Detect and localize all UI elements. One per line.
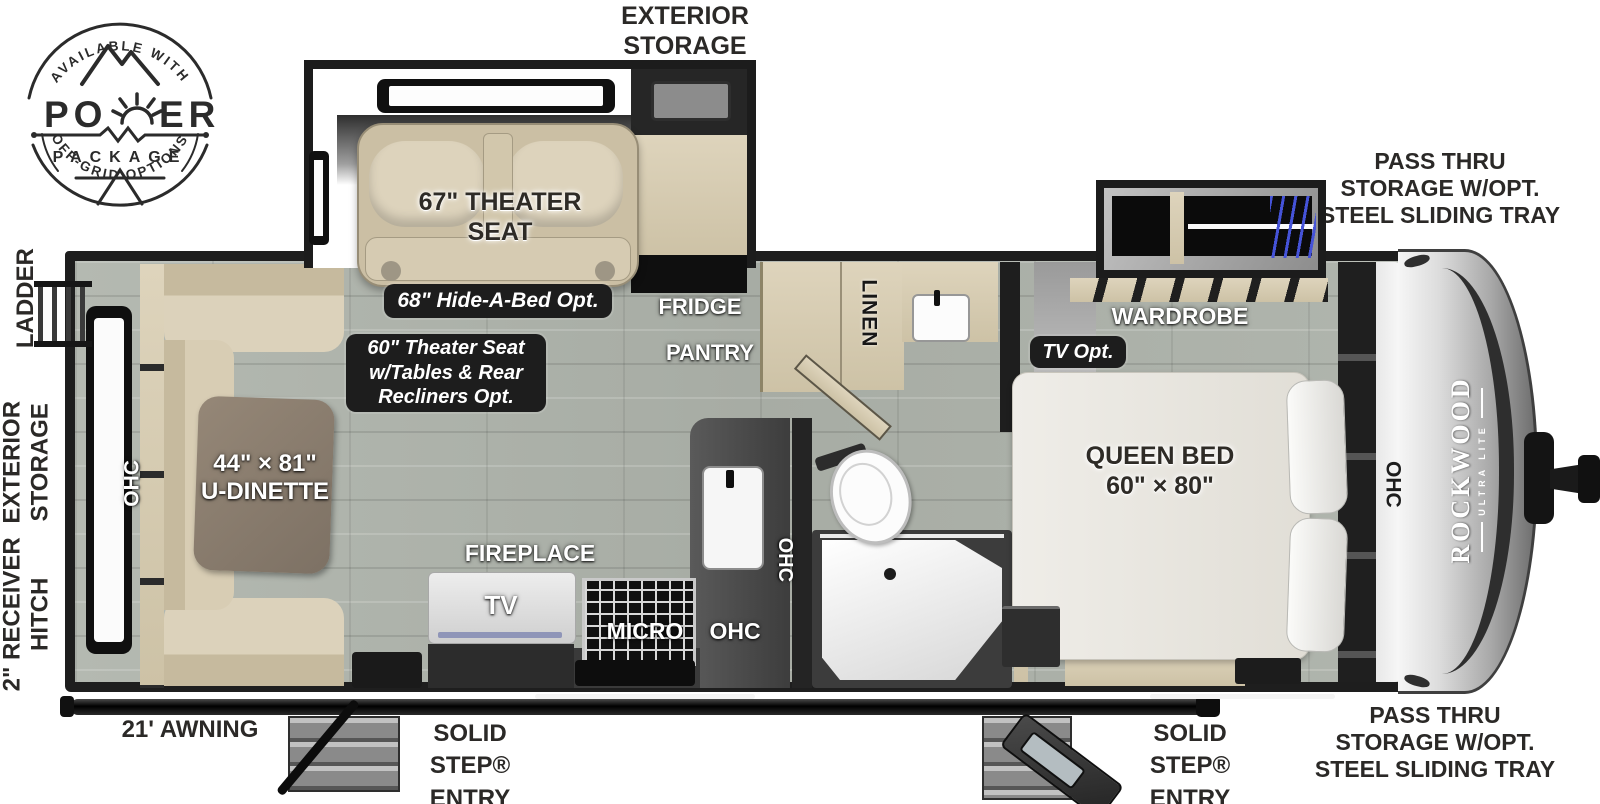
awning-end-cap-left [60, 696, 74, 717]
dinette-bench-top [164, 264, 344, 352]
bed-pillow-bottom [1286, 517, 1349, 653]
brand-name: ROCKWOOD [1446, 376, 1476, 563]
floorplan-canvas: AVAILABLE WITH OFF-GRID OPTIONS PO ER PA… [0, 0, 1600, 804]
threshold-right [1150, 694, 1335, 699]
entry-steps-left [288, 716, 400, 792]
side-cabinet-dark [352, 652, 422, 688]
label-ohc-front: OHC [1380, 449, 1405, 519]
label-queen-bed: QUEEN BED 60" × 80" [1060, 442, 1260, 501]
hitch-coupler [1578, 455, 1600, 503]
label-wardrobe: WARDROBE [1090, 303, 1270, 330]
threshold-left [535, 694, 755, 699]
slideout-side-window [309, 151, 329, 245]
shower-pan [822, 540, 1002, 680]
hitch-jack [1524, 432, 1554, 524]
label-ohc-sink: OHC [772, 525, 796, 595]
badge-tv-opt: TV Opt. [1030, 336, 1126, 368]
label-pass-thru-top: PASS THRU STORAGE W/OPT. STEEL SLIDING T… [1280, 148, 1600, 229]
logo-word-pre: PO [44, 94, 107, 135]
stove-base [575, 660, 695, 686]
label-exterior-storage-top: EXTERIOR STORAGE [555, 2, 815, 61]
nightstand [1002, 606, 1060, 667]
label-linen: LINEN [856, 265, 881, 361]
tv-screen-strip [438, 632, 562, 638]
label-fridge: FRIDGE [645, 294, 755, 320]
label-receiver-hitch: 2" RECEIVER HITCH [0, 529, 55, 699]
ladder-icon [34, 281, 92, 347]
label-entry-left: SOLID STEP® ENTRY [395, 718, 545, 804]
label-ohc-dinette: OHC [121, 448, 146, 518]
sun-icon [113, 94, 161, 123]
brand-tagline: ULTRA LITE [1477, 424, 1487, 516]
shower-drain-icon [884, 568, 896, 580]
tv-shelf-dark [428, 644, 574, 688]
brand-rule-left [1481, 522, 1483, 552]
logo-package-text: PACKAGE [53, 149, 188, 166]
badge-hide-a-bed: 68" Hide-A-Bed Opt. [384, 284, 612, 318]
brand-rule-right [1481, 388, 1483, 418]
bath-sink [912, 294, 970, 342]
bed-bench [1235, 658, 1301, 684]
wardrobe-slat-shelf [1070, 278, 1328, 302]
badge-theater-opt: 60" Theater Seat w/Tables & Rear Recline… [346, 334, 546, 412]
bath-faucet-icon [934, 290, 940, 306]
wardrobe-divider [1170, 192, 1184, 264]
label-u-dinette: 44" × 81" U-DINETTE [180, 450, 350, 507]
label-pantry: PANTRY [650, 340, 770, 366]
label-entry-right: SOLID STEP® ENTRY [1115, 718, 1265, 804]
label-pass-thru-bottom: PASS THRU STORAGE W/OPT. STEEL SLIDING T… [1270, 702, 1600, 783]
bed-pillow-top [1286, 379, 1349, 515]
slideout-window [377, 79, 615, 113]
awning-rod [70, 699, 1215, 715]
fridge-cabinet [631, 69, 747, 293]
label-micro: MICRO [590, 618, 700, 645]
label-tv: TV [428, 590, 574, 621]
label-theater-seat: 67" THEATER SEAT [400, 188, 600, 247]
wardrobe-slideout [1096, 180, 1326, 278]
logo-word-post: ER [159, 94, 220, 135]
brand-logo: ROCKWOOD ULTRA LITE [1442, 365, 1490, 575]
label-ohc-kitchen: OHC [700, 618, 770, 645]
hangers-icon [1270, 196, 1316, 258]
cabinet-tray [651, 81, 731, 121]
kitchen-faucet-icon [726, 470, 734, 488]
dinette-bench-bottom [164, 598, 344, 686]
shower [812, 530, 1012, 688]
power-package-logo: AVAILABLE WITH OFF-GRID OPTIONS PO ER PA… [18, 6, 222, 222]
label-awning: 21' AWNING [105, 716, 275, 744]
label-fireplace: FIREPLACE [440, 540, 620, 567]
